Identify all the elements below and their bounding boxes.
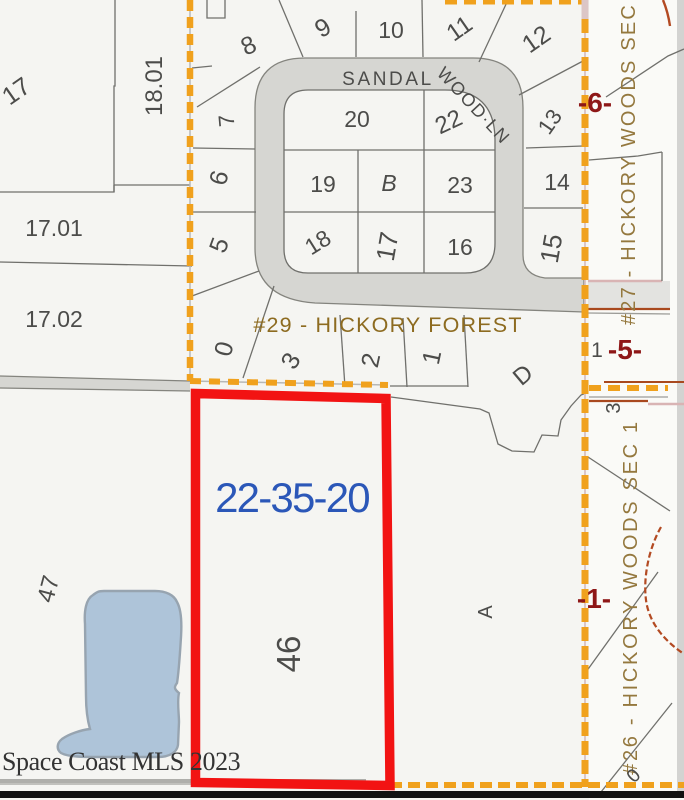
svg-text:3: 3 bbox=[603, 402, 625, 413]
svg-text:17.02: 17.02 bbox=[25, 306, 83, 332]
svg-text:-1-: -1- bbox=[577, 583, 611, 614]
svg-text:19: 19 bbox=[310, 171, 336, 197]
svg-text:15: 15 bbox=[534, 232, 569, 266]
svg-text:#26 - HICKORY WOODS SEC 1: #26 - HICKORY WOODS SEC 1 bbox=[620, 419, 642, 775]
svg-text:17.01: 17.01 bbox=[25, 215, 83, 241]
svg-text:10: 10 bbox=[378, 17, 404, 43]
svg-text:B: B bbox=[381, 170, 396, 196]
svg-text:16: 16 bbox=[447, 234, 473, 260]
svg-text:20: 20 bbox=[344, 106, 370, 132]
svg-text:1: 1 bbox=[591, 339, 603, 362]
svg-text:#29 - HICKORY FOREST: #29 - HICKORY FOREST bbox=[253, 313, 522, 337]
svg-text:46: 46 bbox=[270, 636, 307, 673]
svg-text:-6-: -6- bbox=[578, 87, 612, 118]
svg-text:23: 23 bbox=[447, 172, 473, 198]
svg-text:-5-: -5- bbox=[608, 334, 642, 365]
svg-text:14: 14 bbox=[544, 169, 570, 195]
svg-text:17: 17 bbox=[370, 230, 405, 264]
svg-text:Space Coast MLS 2023: Space Coast MLS 2023 bbox=[2, 747, 240, 776]
svg-text:18.01: 18.01 bbox=[141, 56, 168, 116]
svg-text:7: 7 bbox=[214, 113, 240, 127]
svg-text:A: A bbox=[475, 605, 497, 619]
svg-text:22-35-20: 22-35-20 bbox=[215, 474, 369, 521]
svg-text:SANDAL: SANDAL bbox=[342, 69, 434, 90]
svg-text:#27 - HICKORY WOODS SEC: #27 - HICKORY WOODS SEC bbox=[618, 3, 640, 325]
